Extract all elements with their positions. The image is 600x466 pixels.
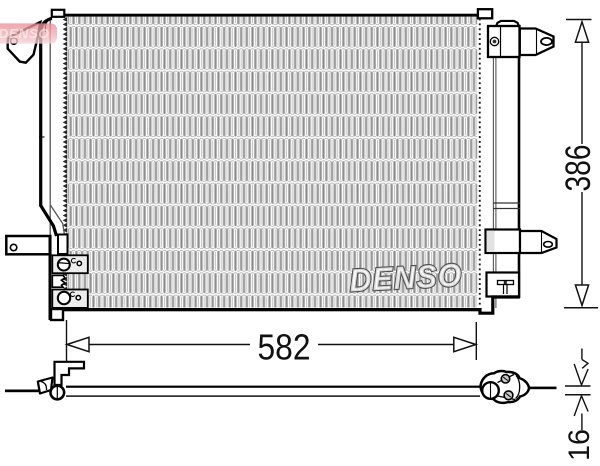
- svg-text:16: 16: [563, 429, 596, 461]
- svg-text:DENSO: DENSO: [0, 27, 49, 41]
- svg-text:386: 386: [559, 145, 598, 192]
- svg-text:582: 582: [258, 327, 311, 368]
- svg-text:DENSO: DENSO: [348, 257, 463, 299]
